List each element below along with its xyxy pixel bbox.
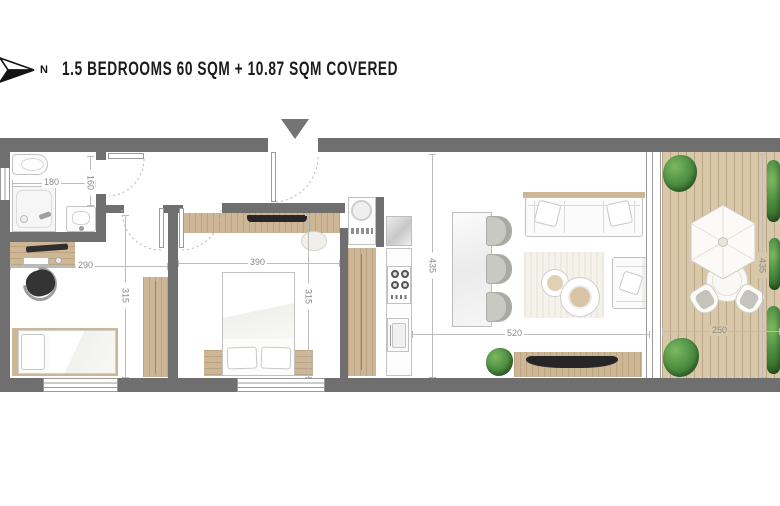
north-label: N [40, 64, 48, 76]
window [237, 378, 325, 392]
wall [318, 138, 780, 152]
bedroom-door [176, 203, 226, 253]
dim-label-bedroom-width: 390 [248, 257, 267, 268]
north-arrow-icon [0, 55, 38, 85]
entrance-marker-icon [281, 119, 309, 139]
double-bed [222, 272, 295, 376]
dim-label-bedroom-depth: 315 [303, 284, 314, 310]
sofa-pillow [534, 200, 562, 228]
dim-label-office-depth: 315 [120, 283, 131, 309]
toilet [12, 154, 48, 175]
entrance-door [268, 152, 324, 204]
single-bed [12, 328, 118, 376]
wall [340, 228, 348, 378]
window [0, 168, 10, 200]
terrace-glass-door [646, 152, 662, 378]
fridge [386, 216, 412, 246]
dining-chair [486, 216, 512, 246]
wardrobe-office [143, 277, 168, 377]
tv-bedroom [247, 215, 307, 222]
dim-label-office-width: 290 [76, 260, 95, 271]
dim-label-terrace-depth: 435 [757, 253, 768, 279]
dim-label-living-width: 520 [505, 328, 524, 339]
nightstand [204, 350, 222, 376]
pouf [301, 231, 327, 251]
dining-chair [486, 292, 512, 322]
sofa-pillow [606, 200, 633, 227]
wall [0, 232, 100, 242]
dim-line [412, 334, 650, 335]
page-title: 1.5 BEDROOMS 60 SQM + 10.87 SQM COVERED [62, 59, 398, 81]
pillow [227, 346, 258, 369]
oven [387, 318, 409, 352]
wall [222, 203, 345, 213]
hob [387, 266, 411, 304]
dim-label-bathroom-depth: 160 [85, 170, 96, 196]
wall [0, 138, 10, 168]
dim-label-living-depth: 435 [427, 253, 438, 279]
pillow [261, 346, 292, 369]
bathroom-door [102, 150, 148, 200]
pillow [21, 334, 45, 370]
dim-label-bathroom-width: 180 [42, 177, 61, 188]
wall [0, 200, 10, 392]
wall [376, 197, 384, 247]
window [43, 378, 118, 392]
nightstand [295, 350, 313, 376]
dining-chair [486, 254, 512, 284]
wall [118, 378, 237, 392]
plant [486, 348, 513, 376]
office-chair [20, 263, 62, 305]
washing-machine [348, 197, 376, 245]
wall [325, 378, 780, 392]
hedge [767, 160, 780, 222]
bathroom-sink [66, 206, 96, 232]
umbrella-icon [684, 205, 762, 279]
dim-label-terrace-width: 250 [710, 325, 729, 336]
shower [12, 186, 56, 232]
sofa [525, 197, 643, 237]
kitchen-tall-cabinets [348, 248, 376, 376]
wall [96, 194, 106, 242]
hedge [767, 306, 780, 374]
floor-plan-page: N 1.5 BEDROOMS 60 SQM + 10.87 SQM COVERE… [0, 0, 780, 506]
hedge [769, 238, 780, 290]
armchair [612, 257, 650, 309]
coffee-table-large [560, 277, 600, 317]
